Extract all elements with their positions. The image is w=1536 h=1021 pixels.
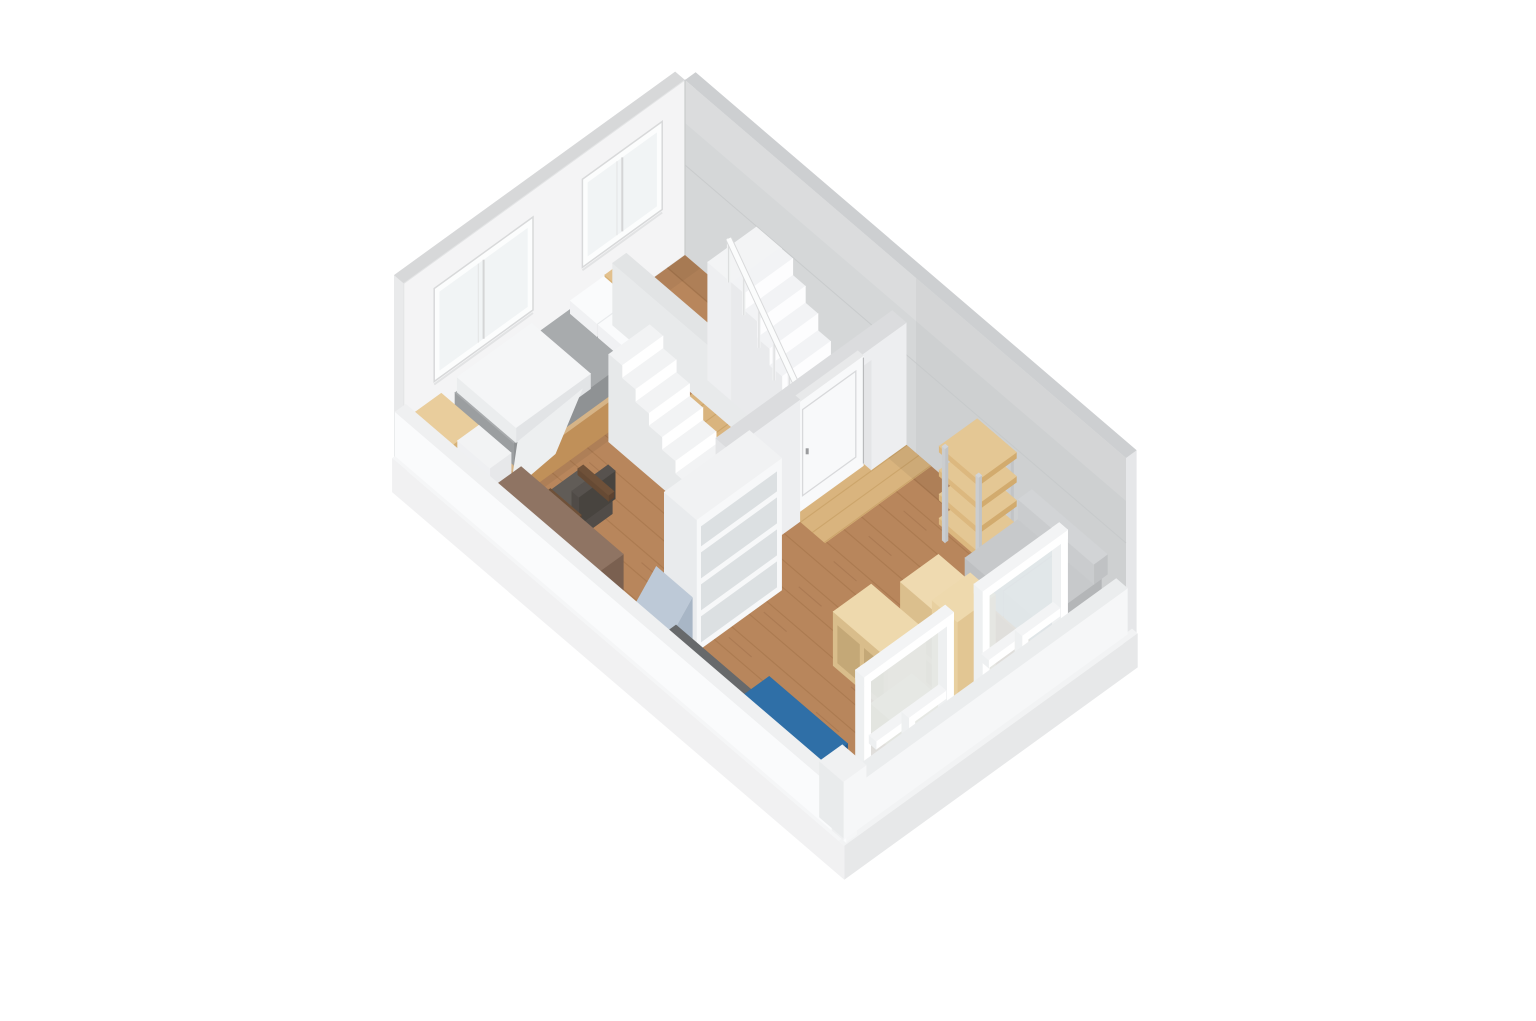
- floor-plan-3d-view: [0, 0, 1536, 1021]
- floor-plan-render: [0, 0, 1536, 1021]
- stair-landing: [708, 262, 733, 402]
- ladder-shelf-post-3: [945, 447, 948, 543]
- partition-wall: [871, 323, 906, 470]
- ladder-shelf-post-3: [942, 446, 945, 542]
